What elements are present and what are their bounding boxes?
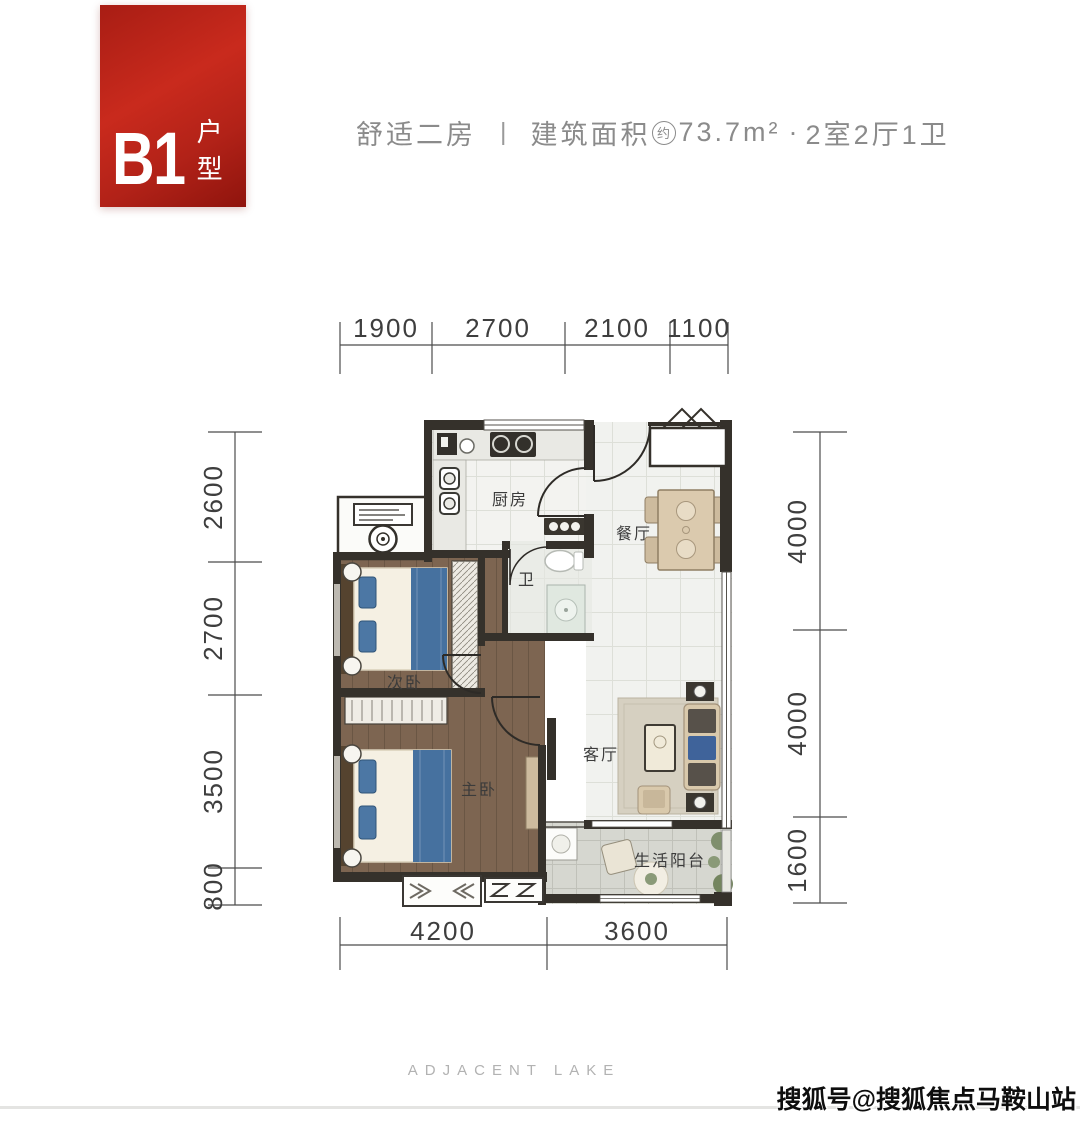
dim-bottom-1: 3600 — [604, 916, 670, 946]
dim-left-1: 2700 — [198, 595, 228, 661]
living-furniture — [547, 682, 720, 814]
dim-right-1: 4000 — [782, 690, 812, 756]
stove-icon — [490, 432, 536, 457]
louver-window — [485, 878, 543, 902]
plant-icon — [645, 873, 657, 885]
dim-right-0: 4000 — [782, 498, 812, 564]
dim-top-3: 1100 — [667, 313, 731, 343]
dim-right-2: 1600 — [782, 827, 812, 893]
unit-description: 舒适二房 | 建筑面积 约 73.7m² · 2室2厅1卫 — [356, 113, 950, 152]
dim-left-2: 3500 — [198, 748, 228, 814]
cabinet — [650, 409, 726, 466]
unit-badge: B1 户型 — [100, 5, 246, 207]
bed-headboard — [341, 746, 354, 866]
area-label: 建筑面积 — [531, 113, 651, 152]
washing-machine-icon — [370, 526, 397, 553]
middle-dot: · — [789, 117, 798, 148]
dresser — [526, 757, 539, 829]
watermark-text: 搜狐号@搜狐焦点马鞍山站 — [777, 1080, 1076, 1116]
dim-bottom-0: 4200 — [410, 916, 476, 946]
unit-code-suffix: 户型 — [197, 112, 246, 191]
bath-label: 卫 — [518, 572, 536, 589]
dim-left-0: 2600 — [198, 464, 228, 530]
living-label: 客厅 — [583, 746, 619, 764]
approx-circle-mark: 约 — [652, 121, 676, 145]
second-bedroom-label: 次卧 — [387, 674, 423, 692]
plant-icon — [708, 856, 720, 868]
dim-top-2: 2100 — [584, 313, 650, 343]
header-divider: | — [500, 118, 507, 147]
chair — [601, 839, 637, 875]
sink-icon — [460, 439, 474, 453]
tv-icon — [547, 718, 556, 780]
dining-label: 餐厅 — [616, 525, 652, 543]
dim-top-0: 1900 — [353, 313, 419, 343]
room-layout: 2室2厅1卫 — [806, 113, 950, 152]
balcony-label: 生活阳台 — [634, 852, 706, 870]
utility-balcony — [338, 497, 428, 559]
dining-set — [645, 490, 727, 570]
unit-code: B1 — [112, 128, 184, 191]
master-bedroom-label: 主卧 — [461, 781, 497, 799]
bay-window — [403, 876, 481, 906]
dim-left-3: 800 — [198, 861, 228, 910]
vanity — [544, 518, 586, 535]
dim-top-1: 2700 — [465, 313, 531, 343]
brand-text: ADJACENT LAKE — [0, 1062, 1028, 1079]
unit-type-name: 舒适二房 — [356, 113, 476, 152]
area-value: 73.7m² — [679, 117, 781, 148]
toilet-icon — [545, 551, 575, 572]
bath-fixtures — [545, 551, 585, 636]
kitchen-label: 厨房 — [492, 491, 528, 509]
